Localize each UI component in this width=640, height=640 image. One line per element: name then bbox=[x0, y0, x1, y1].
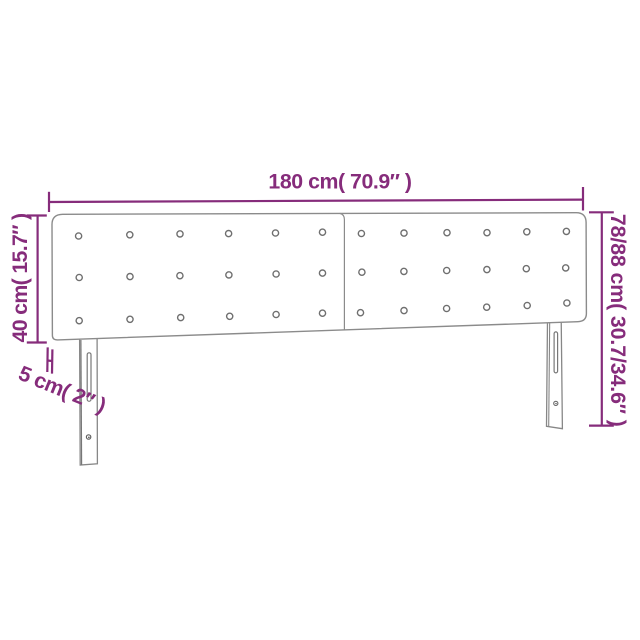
svg-text:40 cm( 15.7″ ): 40 cm( 15.7″ ) bbox=[8, 213, 32, 343]
svg-text:180 cm( 70.9″ ): 180 cm( 70.9″ ) bbox=[268, 170, 412, 194]
svg-text:78/88 cm( 30.7/34.6″ ): 78/88 cm( 30.7/34.6″ ) bbox=[606, 214, 630, 427]
